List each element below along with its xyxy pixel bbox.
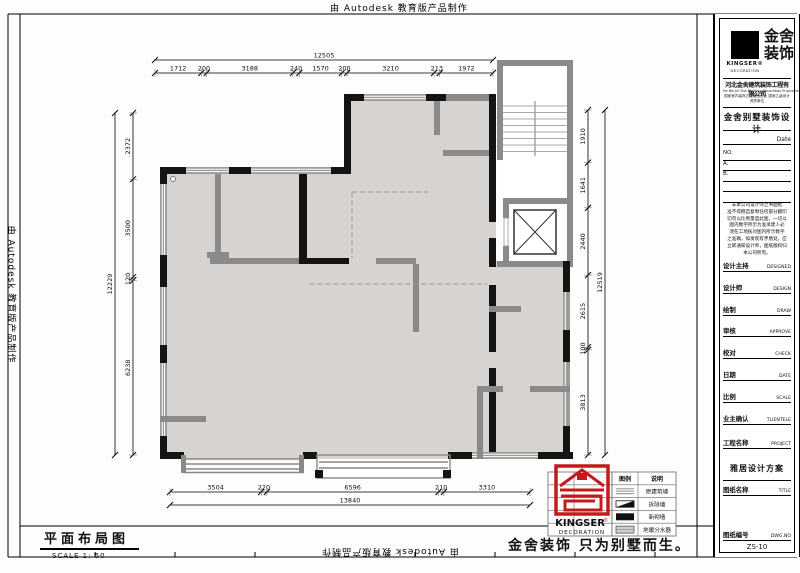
dim-label: 1570 xyxy=(312,65,329,73)
dim-label: 12505 xyxy=(314,52,335,60)
no-line xyxy=(723,182,791,193)
right-wing-interior xyxy=(489,261,570,459)
dim-chain-left: 23723500120623812229 xyxy=(106,110,137,458)
dwg-no-label: 图纸编号 xyxy=(723,530,749,539)
project-label-en: PROJECT xyxy=(771,442,791,447)
signature-field-row: 设计主持DESIGNED xyxy=(723,261,791,283)
dwg-no-field: 图纸编号DWG.NO xyxy=(723,530,791,541)
disclaimer-line: 之准确，如发现有矛盾处，应 xyxy=(723,237,791,244)
legend-table-right: 图例说明原建筑墙拆除墙新砌墙地暖分水器 xyxy=(612,472,676,536)
drawing-sheet: 1712200318824015702003210213197212505350… xyxy=(0,0,800,573)
disclaimer-line: 立即通知设计师，图纸版权归 xyxy=(723,244,791,251)
legend-label: 原建筑墙 xyxy=(646,488,669,496)
copyright-disclaimer: 非本公司设计师之书面批准不得擅自复制任何部分翻印切勿以比例量度此图，一切以图内数… xyxy=(723,203,791,257)
drawing-no-list: NO.A.B. xyxy=(723,150,791,203)
no-line: B. xyxy=(723,171,791,182)
dim-label: 2615 xyxy=(579,303,587,320)
dim-label: 100 xyxy=(579,342,587,354)
drawing-title: 平面布局图 xyxy=(40,528,139,550)
dim-label: 1712 xyxy=(170,65,187,73)
dim-label: 3188 xyxy=(241,65,258,73)
stamp-kingser-text: KINGSER xyxy=(555,518,605,529)
signature-fields: 设计主持DESIGNED设计师DESIGN绘制DRAW审核APPROVE校对CH… xyxy=(723,261,791,435)
svg-text:®: ® xyxy=(603,517,608,524)
company-certs: 国家室内装饰乙级施工企业 国家乙级设计资质单位 xyxy=(723,94,791,104)
svg-text:图例: 图例 xyxy=(619,475,631,483)
legend-label: 拆除墙 xyxy=(649,500,666,508)
dim-label: 6238 xyxy=(124,360,132,377)
dim-label: 200 xyxy=(338,65,350,73)
date-label: Date xyxy=(723,136,791,145)
project-label: 工程名称 xyxy=(723,438,749,447)
no-line: A. xyxy=(723,161,791,172)
dim-label: 13840 xyxy=(340,497,361,505)
project-name-field: 工程名称PROJECT xyxy=(723,438,791,449)
svg-text:说明: 说明 xyxy=(651,475,663,483)
brand-characters: 金舍 装饰 xyxy=(764,28,794,62)
floor-plan-canvas: 1712200318824015702003210213197212505350… xyxy=(0,0,800,573)
project-name-value: 雅居设计方案 xyxy=(723,463,791,481)
dim-chain-top: 1712200318824015702003210213197212505 xyxy=(152,52,496,78)
signature-field-row: 业主确认TLIENTELE xyxy=(723,414,791,436)
title-block: KINGSER® DECORATION 金舍 装饰 河北金舍建筑装饰工程有限公司… xyxy=(713,14,800,557)
dim-chain-right: 1910164124402615100381312519 xyxy=(579,107,608,458)
sheet-title-field: 图纸名称TITLE xyxy=(723,485,791,496)
column-symbol xyxy=(171,177,176,182)
dim-label: 3813 xyxy=(579,394,587,411)
dim-label: 12229 xyxy=(106,274,114,295)
title-block-inner: KINGSER® DECORATION 金舍 装饰 河北金舍建筑装饰工程有限公司… xyxy=(719,18,795,553)
dim-label: 3310 xyxy=(479,484,496,492)
kingser-logo-text: KINGSER® xyxy=(726,61,764,67)
dim-label: 6596 xyxy=(344,484,361,492)
signature-field-row: 审核APPROVE xyxy=(723,326,791,348)
brand-line1: 金舍 xyxy=(764,28,794,45)
dim-label: 1641 xyxy=(579,177,587,194)
kingser-logo-sub: DECORATION xyxy=(726,68,764,73)
no-line: NO. xyxy=(723,150,791,161)
signature-field-row: 校对CHECK xyxy=(723,348,791,370)
dwg-no-value: ZS-10 xyxy=(723,543,791,551)
disclaimer-line: 准不得擅自复制任何部分翻印 xyxy=(723,210,791,217)
no-line xyxy=(723,192,791,203)
dwg-no-label-en: DWG.NO xyxy=(771,534,791,539)
autodesk-watermark-bottom: 由 Autodesk 教育版产品制作 xyxy=(300,546,480,559)
disclaimer-line: 本公司所有。 xyxy=(723,251,791,258)
dim-label: 213 xyxy=(431,65,443,73)
dim-label: 1972 xyxy=(458,65,475,73)
dim-label: 3504 xyxy=(207,484,224,492)
dim-label: 240 xyxy=(290,65,302,73)
signature-field-row: 设计师DESIGN xyxy=(723,283,791,305)
signature-field-row: 日期DATE xyxy=(723,370,791,392)
dim-label: 2372 xyxy=(124,138,132,155)
autodesk-watermark-left: 由 Autodesk 教育版产品制作 xyxy=(6,215,19,375)
dim-label: 1910 xyxy=(579,128,587,145)
unit-interior xyxy=(160,94,496,459)
dim-label: 3210 xyxy=(382,65,399,73)
sheet-title-label: 图纸名称 xyxy=(723,485,749,494)
dim-label: 120 xyxy=(124,273,132,285)
disclaimer-line: 须在工地核对图内所示数字 xyxy=(723,230,791,237)
dim-label: 12519 xyxy=(596,272,604,293)
dim-label: 2440 xyxy=(579,233,587,250)
drawing-scale: SCALE 1: 50 xyxy=(52,552,139,560)
disclaimer-line: 非本公司设计师之书面批 xyxy=(723,203,791,210)
floor-plan xyxy=(160,60,573,478)
company-name-en: He Bei Jin She Building Decoration Engin… xyxy=(723,89,791,93)
dim-label: 210 xyxy=(435,484,447,492)
sheet-title-label-en: TITLE xyxy=(779,489,791,494)
kingser-logo-mark xyxy=(731,31,759,59)
dim-label: 200 xyxy=(198,65,210,73)
legend-label: 新砌墙 xyxy=(649,513,666,521)
drawing-title-block: 平面布局图 SCALE 1: 50 xyxy=(40,528,139,560)
dim-chain-bottom: 35042206596210331013840 xyxy=(167,484,533,509)
project-type: 金舍别墅装饰设计 xyxy=(723,111,791,135)
signature-field-row: 比例SCALE xyxy=(723,392,791,414)
signature-field-row: 绘制DRAW xyxy=(723,305,791,327)
dim-label: 220 xyxy=(258,484,270,492)
brand-line2: 装饰 xyxy=(764,45,794,62)
dim-label: 3500 xyxy=(124,220,132,237)
autodesk-watermark-top: 由 Autodesk 教育版产品制作 xyxy=(330,1,468,14)
legend-label: 地暖分水器 xyxy=(643,526,671,534)
company-slogan: 金舍装饰 只为别墅而生。 xyxy=(508,535,691,555)
